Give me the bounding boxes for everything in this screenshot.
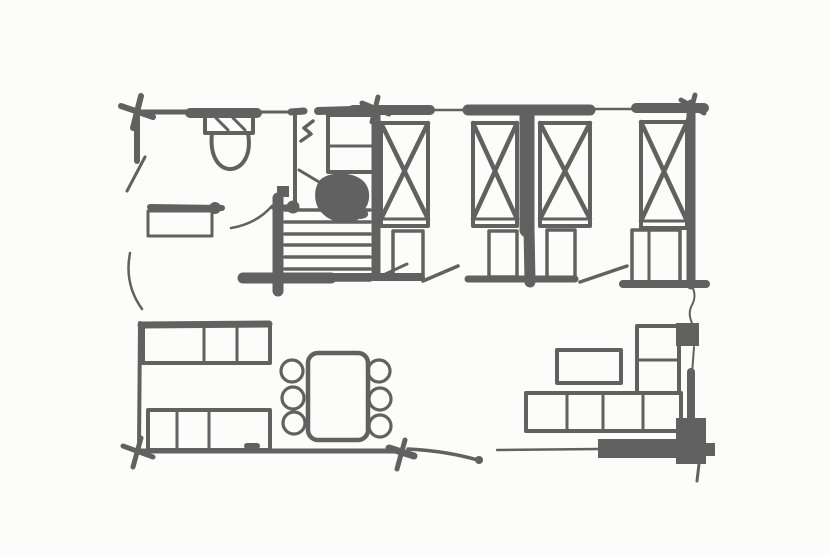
top-wall-seg-5 (318, 110, 353, 111)
top-wall-seg-4 (291, 111, 304, 112)
stair-landing-chair-blob (315, 173, 369, 222)
dining-chair-4 (368, 360, 390, 382)
nightstand-4 (632, 230, 680, 282)
bottom-wall-curve (408, 449, 481, 461)
bottom-right-corner-tail (697, 464, 699, 481)
nightstand-2 (489, 231, 517, 277)
bottom-wall-curve-end (475, 456, 483, 464)
hall-wardrobe (328, 115, 377, 172)
vanity-cabinet (148, 211, 212, 236)
kitchen-counter-upper (143, 325, 270, 363)
right-wall-squiggle (690, 286, 695, 325)
bathroom-door-arc (231, 206, 272, 228)
dining-chair-2 (282, 387, 304, 409)
toilet-bowl (212, 133, 249, 169)
bottom-wall-thin (497, 449, 598, 450)
coffee-table (557, 350, 621, 383)
dining-table (308, 353, 368, 440)
toilet-tank-hatch-2 (233, 118, 245, 130)
bedroom-partition-wall-lower (529, 228, 530, 282)
kitchen-counter-upper-edge (141, 324, 269, 325)
dining-chair-5 (369, 388, 391, 410)
bedroom-door-swing-2 (580, 266, 627, 282)
sketch-canvas (0, 0, 830, 555)
dining-chair-6 (369, 415, 391, 437)
bedroom-door-swing-1 (423, 266, 458, 281)
left-wall-lower (139, 323, 140, 450)
left-door-arc (129, 253, 143, 309)
page-background (0, 0, 830, 555)
door-pivot-symbol (301, 121, 313, 141)
sofa-base-dark-bar (598, 439, 678, 458)
dining-chair-1 (281, 360, 303, 382)
floor-plan-svg (0, 0, 830, 555)
dining-chair-3 (283, 412, 305, 434)
nightstand-3 (547, 230, 575, 278)
toilet-tank-hatch-1 (216, 118, 228, 130)
bottom-right-corner-nub (704, 443, 715, 456)
blob-spur-line (299, 170, 319, 182)
